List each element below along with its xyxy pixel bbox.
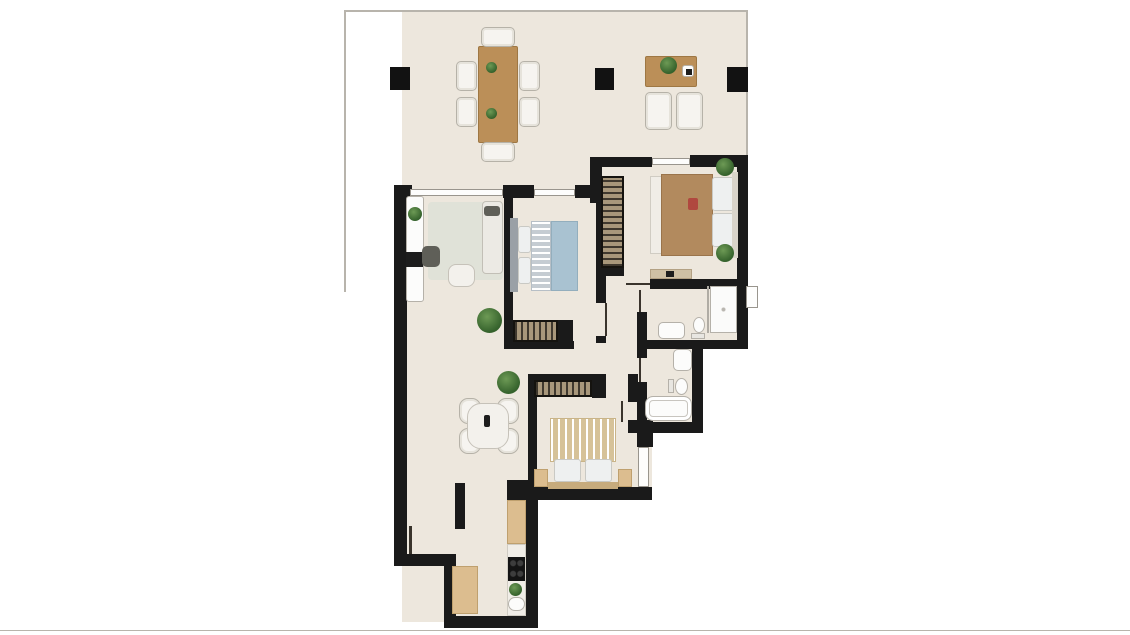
wall-bath-divider bbox=[637, 340, 748, 349]
kitchen-sink bbox=[508, 597, 525, 611]
door-bedroom1 bbox=[605, 303, 607, 336]
master-duvet bbox=[661, 174, 713, 256]
bedroom1-pillow-2 bbox=[518, 257, 531, 284]
terrace-chair-right-1 bbox=[519, 61, 540, 91]
terrace-table-plant-2 bbox=[486, 108, 497, 119]
terrace-chair-left-1 bbox=[456, 61, 477, 91]
door-master-bedroom bbox=[626, 283, 650, 285]
kitchen-plant bbox=[509, 583, 522, 596]
living-sofa-cushion bbox=[484, 206, 500, 216]
wall-exterior-right bbox=[737, 155, 748, 349]
window-master-terrace bbox=[652, 158, 690, 165]
terrace-tray-item bbox=[686, 69, 692, 75]
kitchen-counter-west bbox=[452, 566, 478, 614]
bedroom2-nightstand-2 bbox=[618, 469, 632, 487]
window-bedroom1-terrace bbox=[534, 189, 575, 196]
master-console-decor bbox=[666, 271, 674, 277]
living-tv bbox=[406, 252, 423, 267]
master-wardrobe bbox=[601, 176, 624, 268]
door-bathroom2 bbox=[639, 358, 641, 382]
floor-plan-canvas bbox=[0, 0, 1130, 635]
master-nightstand-plant-1 bbox=[716, 158, 734, 176]
wall-bedroom1-bottom bbox=[504, 341, 574, 349]
image-bottom-edge bbox=[0, 630, 1130, 631]
terrace-edge-left bbox=[344, 10, 346, 292]
bedroom2-nightstand-1 bbox=[534, 469, 548, 487]
terrace-edge-top bbox=[344, 10, 748, 12]
wall-step-bottom-left bbox=[394, 554, 456, 566]
dining-plant bbox=[497, 371, 520, 394]
wall-kitchen-right bbox=[526, 497, 538, 628]
wall-bedroom1-door-jamb bbox=[596, 336, 606, 343]
living-sideboard-plant bbox=[408, 207, 422, 221]
bath1-toilet-tank bbox=[691, 333, 705, 339]
master-accent-pillow bbox=[688, 198, 698, 210]
living-plant bbox=[477, 308, 502, 333]
bedroom1-pillow-1 bbox=[518, 226, 531, 253]
terrace-chair-left-2 bbox=[456, 97, 477, 127]
bedroom1-wardrobe bbox=[513, 320, 558, 342]
bedroom2-wardrobe bbox=[534, 380, 592, 397]
bedroom2-pillow-2 bbox=[585, 459, 612, 482]
door-bedroom2 bbox=[621, 401, 623, 422]
bedroom1-duvet bbox=[551, 221, 578, 291]
bath2-sink bbox=[673, 349, 692, 371]
bedroom2-headboard bbox=[548, 482, 618, 489]
bath1-shower-tray bbox=[710, 286, 737, 333]
wall-master-wardrobe-stub bbox=[600, 267, 624, 276]
living-armchair bbox=[422, 246, 440, 267]
bedroom1-bed-fold bbox=[531, 221, 551, 291]
window-living-terrace bbox=[410, 189, 503, 196]
wall-bath2-left-stub bbox=[637, 348, 647, 358]
master-pillow-2 bbox=[712, 213, 734, 247]
dining-table-decor bbox=[484, 415, 490, 427]
pillar-terrace-right bbox=[727, 67, 748, 92]
wall-bedroom1-wardrobe-cap bbox=[557, 320, 573, 342]
wall-bedroom2-wardrobe-cap bbox=[592, 374, 606, 398]
bath1-shower-glass bbox=[707, 286, 709, 333]
wall-living-kitchen-partial bbox=[455, 483, 465, 529]
master-headboard bbox=[732, 172, 738, 258]
wall-bedroom2-right bbox=[628, 374, 638, 402]
terrace-chair-right-2 bbox=[519, 97, 540, 127]
living-coffee-table bbox=[448, 264, 475, 287]
terrace-armchair-2 bbox=[676, 92, 703, 130]
terrace-table-plant-1 bbox=[486, 62, 497, 73]
wall-kitchen-bottom bbox=[444, 616, 538, 628]
wall-bath1-left bbox=[637, 312, 647, 340]
bath2-bathtub bbox=[645, 396, 692, 421]
wall-bath2-right bbox=[692, 340, 703, 433]
bath1-toilet-bowl bbox=[693, 317, 705, 333]
door-bathroom1 bbox=[639, 290, 641, 312]
bath2-toilet-bowl bbox=[675, 378, 688, 395]
terrace-chair-top bbox=[481, 27, 515, 47]
wall-bedroom2-right-stub bbox=[628, 420, 653, 433]
pillar-terrace-left bbox=[390, 67, 410, 90]
window-shower-east bbox=[746, 286, 758, 308]
window-bedroom2-east bbox=[638, 447, 649, 487]
master-pillow-1 bbox=[712, 177, 734, 211]
bedroom2-duvet bbox=[550, 418, 616, 462]
kitchen-counter-east-upper bbox=[507, 500, 526, 544]
bedroom2-pillow-1 bbox=[554, 459, 581, 482]
bath1-sink bbox=[658, 322, 685, 339]
terrace-armchair-1 bbox=[645, 92, 672, 130]
kitchen-stove bbox=[508, 557, 525, 581]
door-living-west bbox=[409, 526, 412, 554]
pillar-terrace-middle bbox=[595, 68, 614, 90]
terrace-chair-bottom bbox=[481, 142, 515, 162]
terrace-coffee-table-plant bbox=[660, 57, 677, 74]
bedroom1-headboard bbox=[510, 218, 518, 292]
bath2-toilet-tank bbox=[668, 379, 674, 393]
master-nightstand-plant-2 bbox=[716, 244, 734, 262]
terrace-dining-table bbox=[478, 46, 518, 143]
